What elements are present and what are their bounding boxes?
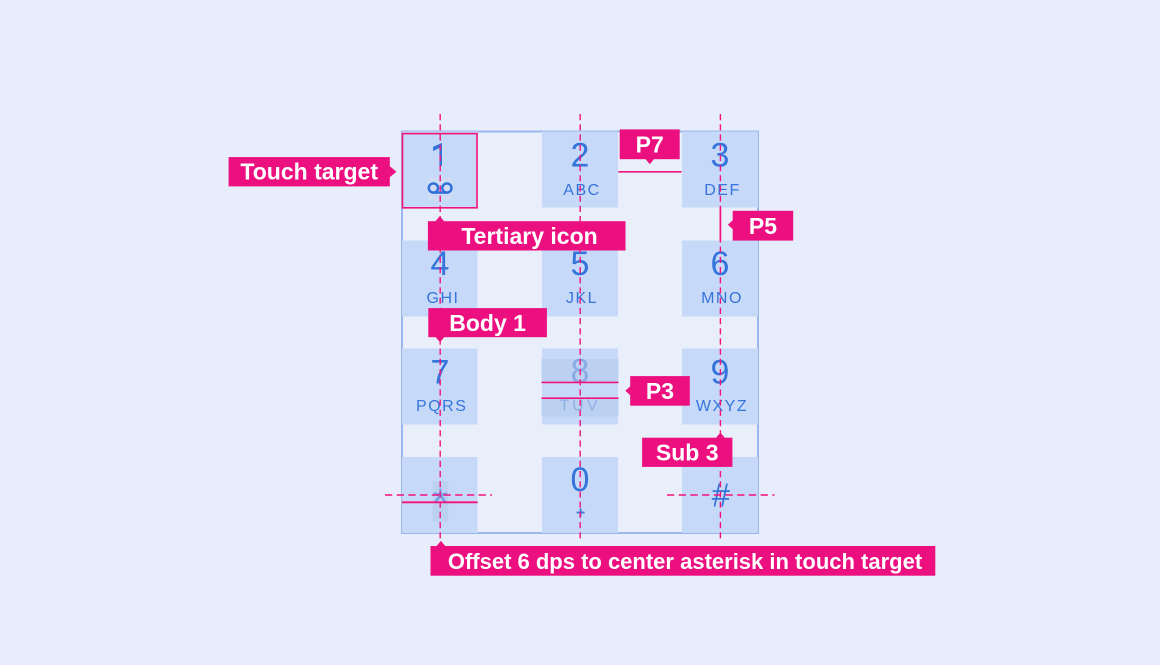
svg-text:Tertiary icon: Tertiary icon (461, 223, 597, 249)
svg-text:P7: P7 (636, 132, 664, 158)
svg-text:GHI: GHI (427, 290, 460, 307)
svg-text:JKL: JKL (566, 290, 598, 307)
svg-text:DEF: DEF (704, 182, 741, 199)
svg-text:WXYZ: WXYZ (696, 398, 748, 415)
svg-text:MNO: MNO (701, 290, 743, 307)
svg-text:Offset 6 dps to center asteris: Offset 6 dps to center asterisk in touch… (448, 549, 923, 574)
svg-text:Sub 3: Sub 3 (656, 440, 719, 466)
svg-text:ABC: ABC (563, 182, 600, 199)
svg-text:Body 1: Body 1 (449, 310, 526, 336)
svg-text:P5: P5 (749, 213, 777, 239)
svg-text:Touch target: Touch target (240, 158, 378, 184)
svg-text:PQRS: PQRS (416, 398, 467, 415)
svg-text:P3: P3 (646, 378, 674, 404)
